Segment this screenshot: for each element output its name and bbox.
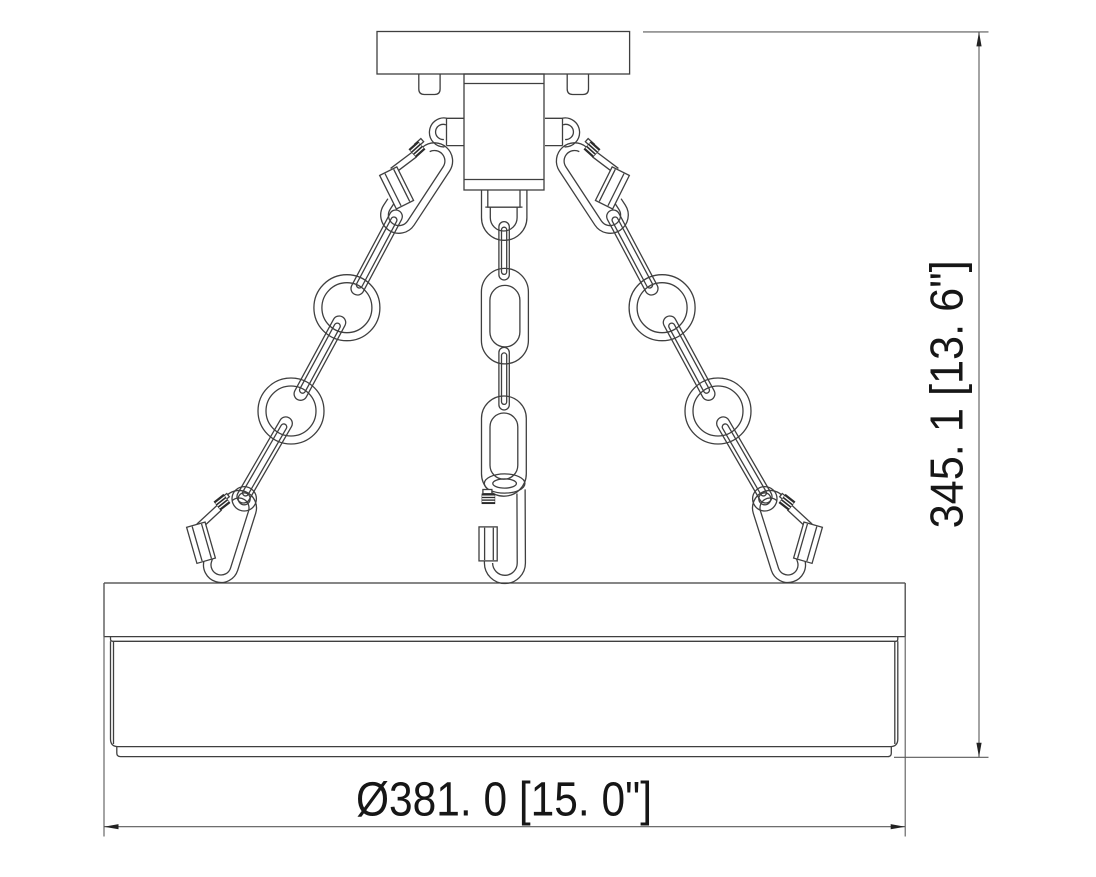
svg-text:345. 1 [13. 6"]: 345. 1 [13. 6"] bbox=[921, 260, 973, 528]
svg-text:Ø381. 0 [15. 0"]: Ø381. 0 [15. 0"] bbox=[356, 774, 652, 827]
